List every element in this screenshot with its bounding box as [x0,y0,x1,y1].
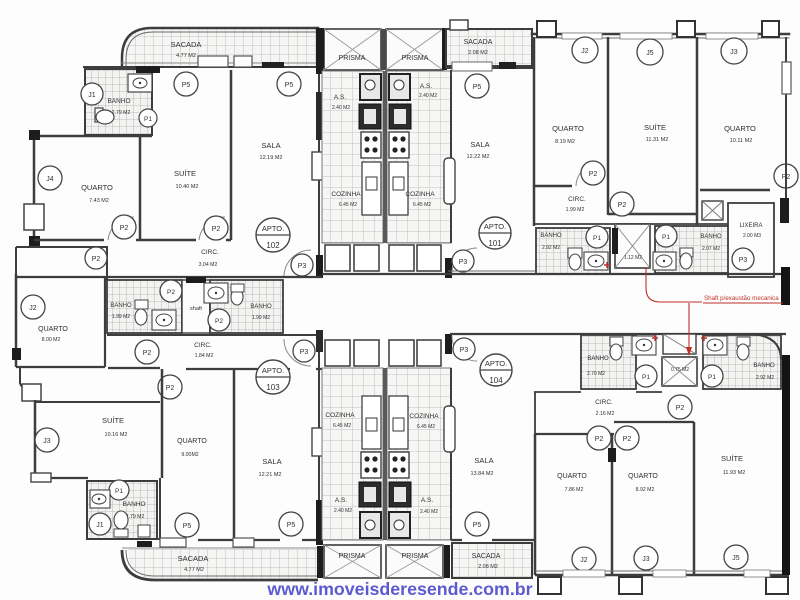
svg-text:LIXEIRA: LIXEIRA [739,223,762,229]
svg-text:SALA: SALA [470,140,489,149]
svg-text:J1: J1 [96,522,104,529]
svg-text:13.84 M2: 13.84 M2 [471,471,494,477]
svg-text:Shaft p/exaustão mecanica: Shaft p/exaustão mecanica [704,295,779,302]
svg-text:APTO.: APTO. [262,366,284,375]
svg-text:QUARTO: QUARTO [724,124,756,133]
svg-text:6.45 M2: 6.45 M2 [333,423,351,429]
svg-text:SALA: SALA [474,456,493,465]
svg-text:P5: P5 [183,523,192,530]
svg-text:2.92 M2: 2.92 M2 [756,375,774,381]
svg-text:2.92 M2: 2.92 M2 [542,245,560,251]
svg-text:1.84 M2: 1.84 M2 [195,353,214,359]
svg-text:P2: P2 [212,226,221,233]
svg-text:J2: J2 [581,48,589,55]
svg-text:PRISMA: PRISMA [339,553,366,560]
svg-text:APTO.: APTO. [262,224,284,233]
svg-text:J4: J4 [46,176,54,183]
svg-text:BANHO: BANHO [110,303,132,309]
svg-text:SALA: SALA [261,141,280,150]
svg-text:9.00M2: 9.00M2 [181,452,198,458]
svg-text:10.16 M2: 10.16 M2 [105,432,128,438]
svg-text:2.79 M2: 2.79 M2 [112,110,131,116]
svg-text:PRISMA: PRISMA [339,55,366,62]
svg-text:4.77 M2: 4.77 M2 [176,53,196,59]
svg-text:SUÍTE: SUÍTE [174,169,196,178]
svg-text:QUARTO: QUARTO [628,473,658,480]
svg-text:P5: P5 [473,522,482,529]
svg-text:A.S.: A.S. [335,497,347,504]
svg-text:10.11 M2: 10.11 M2 [730,138,753,144]
svg-text:6.45 M2: 6.45 M2 [339,202,357,208]
svg-text:APTO.: APTO. [485,359,507,368]
svg-text:SACADA: SACADA [178,554,209,563]
svg-text:QUARTO: QUARTO [552,124,584,133]
svg-text:2.16 M2: 2.16 M2 [596,411,615,417]
svg-text:J2: J2 [29,305,37,312]
svg-text:4.77 M2: 4.77 M2 [184,567,204,573]
svg-text:J2: J2 [580,557,588,564]
svg-text:2.08 M2: 2.08 M2 [468,50,488,56]
svg-text:SACADA: SACADA [464,39,493,46]
svg-text:P2: P2 [623,436,632,443]
svg-text:P2: P2 [618,202,627,209]
svg-text:2.40 M2: 2.40 M2 [332,105,350,111]
svg-text:shaft: shaft [190,306,202,312]
svg-text:BANHO: BANHO [700,234,722,240]
svg-text:CIRC.: CIRC. [201,249,219,256]
svg-text:11.93 M2: 11.93 M2 [723,470,746,476]
svg-text:SACADA: SACADA [472,553,501,560]
svg-text:1.99 M2: 1.99 M2 [566,207,585,213]
svg-text:SUÍTE: SUÍTE [102,416,124,425]
svg-text:8.92 M2: 8.92 M2 [636,487,655,493]
svg-text:P1: P1 [115,488,123,495]
svg-text:BANHO: BANHO [122,501,145,508]
svg-text:P2: P2 [595,436,604,443]
svg-text:P1: P1 [593,235,601,242]
svg-text:QUARTO: QUARTO [81,183,113,192]
svg-text:P5: P5 [287,522,296,529]
svg-text:2.40 M2: 2.40 M2 [334,508,352,514]
svg-text:P2: P2 [676,405,685,412]
svg-text:QUARTO: QUARTO [557,473,587,480]
svg-text:0.75 M2: 0.75 M2 [671,367,689,373]
svg-text:P1: P1 [642,374,650,381]
svg-text:P5: P5 [285,82,294,89]
svg-text:A.S.: A.S. [420,83,432,90]
svg-text:BANHO: BANHO [753,363,775,369]
svg-text:P2: P2 [143,350,152,357]
svg-text:2.00 M3: 2.00 M3 [743,233,761,239]
svg-text:12.21 M2: 12.21 M2 [259,472,282,478]
svg-text:10.40 M2: 10.40 M2 [176,184,199,190]
svg-text:8.19 M2: 8.19 M2 [555,139,575,145]
svg-text:P3: P3 [460,347,469,354]
svg-text:P2: P2 [92,256,101,263]
svg-text:P1: P1 [662,234,670,241]
svg-text:COZINHA: COZINHA [405,191,435,198]
svg-text:CIRC.: CIRC. [568,196,586,203]
svg-text:P2: P2 [215,318,223,325]
svg-text:8.00 M2: 8.00 M2 [42,337,61,343]
svg-text:12.19 M2: 12.19 M2 [260,155,283,161]
svg-text:SALA: SALA [262,457,281,466]
svg-text:103: 103 [266,383,280,392]
svg-text:P2: P2 [589,171,598,178]
svg-text:12.22 M2: 12.22 M2 [467,154,490,160]
svg-text:3.04 M2: 3.04 M2 [199,262,218,268]
svg-text:P3: P3 [300,349,309,356]
svg-text:APTO.: APTO. [484,222,506,231]
svg-text:1.12 M2: 1.12 M2 [624,255,642,261]
svg-text:QUARTO: QUARTO [38,326,68,333]
svg-text:SACADA: SACADA [171,40,202,49]
svg-text:2.40 M2: 2.40 M2 [419,93,437,99]
svg-text:P2: P2 [167,289,175,296]
svg-text:2.40 M2: 2.40 M2 [420,509,438,515]
svg-text:P3: P3 [459,259,468,266]
svg-text:COZINHA: COZINHA [325,412,355,419]
svg-text:J3: J3 [43,438,51,445]
svg-text:QUARTO: QUARTO [177,438,207,445]
svg-text:6.45 M2: 6.45 M2 [417,424,435,430]
svg-text:P1: P1 [144,116,152,123]
svg-text:A.S.: A.S. [334,94,346,101]
svg-text:2.07 M2: 2.07 M2 [702,246,720,252]
svg-text:P3: P3 [739,257,748,264]
svg-text:6.45 M2: 6.45 M2 [413,202,431,208]
svg-text:J3: J3 [730,49,738,56]
svg-text:1.99 M2: 1.99 M2 [252,315,270,321]
svg-text:A.S.: A.S. [421,497,433,504]
svg-text:PRISMA: PRISMA [402,553,429,560]
svg-text:7.43 M2: 7.43 M2 [89,198,109,204]
svg-text:11.31 M2: 11.31 M2 [646,137,669,143]
svg-text:1.99 M2: 1.99 M2 [112,314,130,320]
svg-text:SUÍTE: SUÍTE [644,123,666,132]
svg-text:2.08 M2: 2.08 M2 [478,564,498,570]
svg-text:P2: P2 [120,225,129,232]
svg-text:PRISMA: PRISMA [402,55,429,62]
svg-text:P5: P5 [473,84,482,91]
svg-text:J3: J3 [642,556,650,563]
svg-text:102: 102 [266,241,280,250]
svg-text:SUÍTE: SUÍTE [721,454,743,463]
svg-text:2.70 M2: 2.70 M2 [587,371,605,377]
svg-text:101: 101 [488,239,502,248]
svg-text:BANHO: BANHO [587,356,609,362]
svg-text:P3: P3 [298,263,307,270]
svg-text:104: 104 [489,376,503,385]
svg-text:BANHO: BANHO [250,304,272,310]
svg-text:J5: J5 [646,50,654,57]
svg-text:J5: J5 [732,555,740,562]
svg-text:CIRC.: CIRC. [194,342,212,349]
svg-text:J1: J1 [88,92,96,99]
svg-text:7.86 M2: 7.86 M2 [565,487,584,493]
svg-text:COZINHA: COZINHA [409,413,439,420]
svg-text:CIRC.: CIRC. [595,399,613,406]
svg-text:www.imoveisderesende.com.br: www.imoveisderesende.com.br [266,579,532,599]
svg-text:P1: P1 [708,374,716,381]
svg-text:P2: P2 [166,385,175,392]
svg-text:P5: P5 [182,82,191,89]
svg-text:BANHO: BANHO [540,233,562,239]
svg-text:COZINHA: COZINHA [331,191,361,198]
svg-text:BANHO: BANHO [107,98,130,105]
